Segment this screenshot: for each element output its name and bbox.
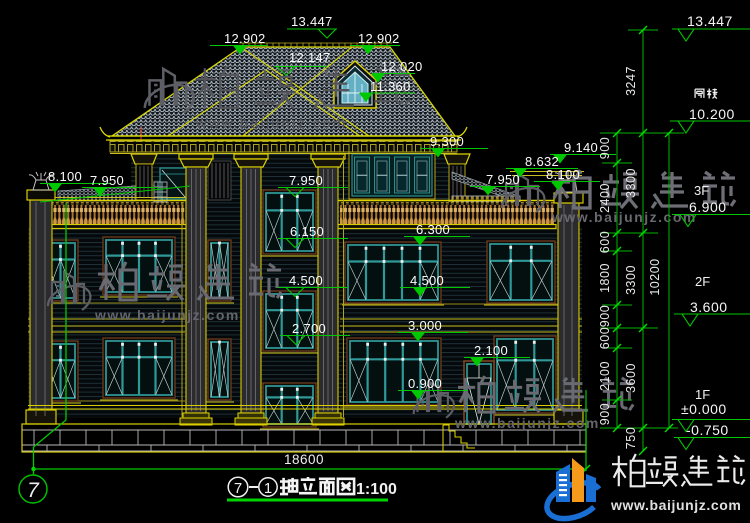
svg-text:3F: 3F (694, 183, 709, 198)
svg-text:750: 750 (624, 427, 638, 449)
svg-text:12.147: 12.147 (289, 50, 331, 65)
svg-text:600: 600 (598, 327, 612, 349)
svg-text:900: 900 (598, 137, 612, 159)
svg-text:13.447: 13.447 (687, 13, 733, 29)
svg-text:www.baijunjz.com: www.baijunjz.com (454, 415, 600, 431)
svg-text:6.150: 6.150 (290, 224, 324, 239)
svg-text:9.140: 9.140 (564, 140, 598, 155)
svg-text:www.baijunjz.com: www.baijunjz.com (610, 497, 741, 513)
svg-text:2F: 2F (695, 274, 710, 289)
svg-text:10.200: 10.200 (689, 106, 735, 122)
svg-text:8.100: 8.100 (546, 167, 580, 182)
svg-text:7.950: 7.950 (90, 173, 124, 188)
svg-text:7: 7 (234, 480, 242, 497)
svg-text:-0.750: -0.750 (686, 422, 729, 438)
svg-text:7.950: 7.950 (289, 173, 323, 188)
svg-text:12.902: 12.902 (224, 31, 266, 46)
svg-text:7.950: 7.950 (486, 172, 520, 187)
svg-text:18600: 18600 (284, 452, 324, 467)
svg-text:3300: 3300 (624, 265, 638, 295)
svg-text:±0.000: ±0.000 (681, 401, 727, 417)
svg-text:11.360: 11.360 (370, 79, 411, 94)
svg-text:2.700: 2.700 (292, 321, 326, 336)
svg-text:3247: 3247 (624, 66, 638, 96)
svg-text:900: 900 (598, 403, 612, 425)
svg-text:13.447: 13.447 (291, 14, 333, 29)
svg-text:4.500: 4.500 (289, 273, 323, 288)
svg-text:900: 900 (598, 305, 612, 327)
svg-text:1800: 1800 (598, 263, 612, 293)
svg-text:3.000: 3.000 (408, 318, 442, 333)
svg-text:4.500: 4.500 (410, 273, 444, 288)
svg-text:12.902: 12.902 (358, 31, 400, 46)
svg-text:600: 600 (598, 231, 612, 253)
svg-text:10200: 10200 (648, 258, 662, 295)
svg-text:7: 7 (27, 479, 40, 502)
svg-text:12.020: 12.020 (381, 59, 423, 74)
svg-text:2100: 2100 (598, 361, 612, 391)
svg-text:6.900: 6.900 (689, 199, 727, 215)
svg-text:6.300: 6.300 (416, 222, 450, 237)
svg-text:www.baijunjz.com: www.baijunjz.com (195, 115, 347, 132)
svg-text:3.600: 3.600 (690, 299, 728, 315)
svg-text:www.baijunjz.com: www.baijunjz.com (551, 209, 697, 225)
svg-text:3600: 3600 (624, 363, 638, 393)
svg-text:1:100: 1:100 (356, 481, 397, 498)
svg-text:1F: 1F (695, 387, 710, 402)
svg-text:1: 1 (264, 480, 272, 497)
svg-text:www.baijunjz.com: www.baijunjz.com (94, 307, 240, 323)
svg-text:2.100: 2.100 (474, 343, 508, 358)
svg-text:8.100: 8.100 (48, 169, 82, 184)
svg-text:2400: 2400 (598, 183, 612, 213)
svg-text:0.900: 0.900 (408, 376, 442, 391)
svg-text:3300: 3300 (624, 168, 638, 198)
svg-text:9.300: 9.300 (430, 134, 464, 149)
